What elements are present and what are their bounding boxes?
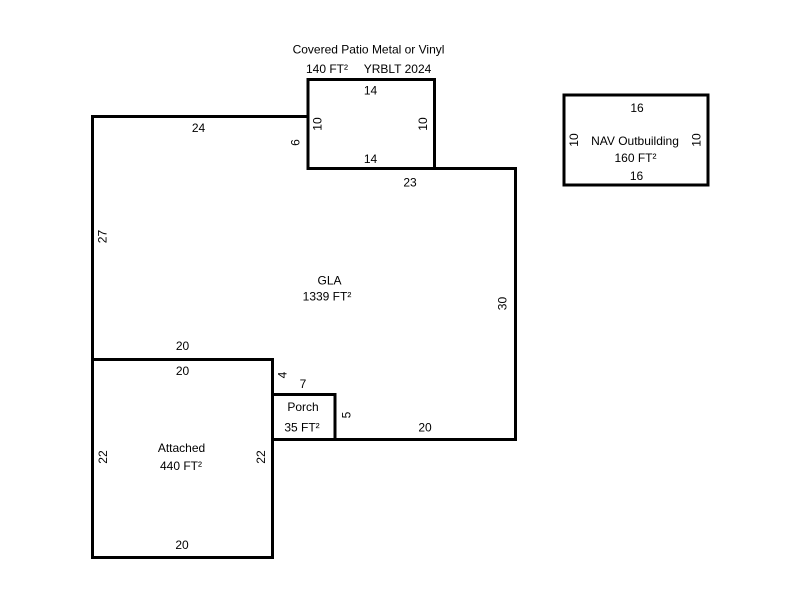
svg-text:4: 4	[276, 371, 290, 378]
svg-text:440 FT²: 440 FT²	[160, 459, 202, 473]
svg-text:14: 14	[364, 84, 378, 98]
svg-text:5: 5	[340, 411, 354, 418]
svg-text:20: 20	[176, 364, 190, 378]
svg-text:6: 6	[289, 139, 303, 146]
svg-text:10: 10	[689, 133, 703, 147]
svg-text:160 FT²: 160 FT²	[614, 151, 656, 165]
svg-text:27: 27	[96, 230, 110, 244]
svg-text:22: 22	[254, 450, 268, 464]
svg-text:20: 20	[176, 339, 190, 353]
svg-text:1339 FT²: 1339 FT²	[303, 290, 352, 304]
svg-text:GLA: GLA	[317, 274, 341, 288]
svg-text:140 FT²: 140 FT²	[306, 62, 348, 76]
svg-text:NAV Outbuilding: NAV Outbuilding	[591, 134, 679, 148]
svg-text:10: 10	[567, 133, 581, 147]
svg-text:20: 20	[418, 421, 432, 435]
svg-text:30: 30	[495, 297, 509, 311]
svg-text:24: 24	[192, 121, 206, 135]
svg-text:10: 10	[311, 117, 325, 131]
svg-text:35 FT²: 35 FT²	[284, 421, 319, 435]
svg-text:22: 22	[96, 450, 110, 464]
svg-text:16: 16	[630, 169, 644, 183]
svg-text:YRBLT 2024: YRBLT 2024	[364, 62, 432, 76]
svg-text:20: 20	[175, 538, 189, 552]
svg-text:Porch: Porch	[287, 400, 318, 414]
svg-text:16: 16	[630, 101, 644, 115]
svg-text:14: 14	[364, 152, 378, 166]
svg-text:Covered Patio Metal or Vinyl: Covered Patio Metal or Vinyl	[293, 43, 445, 57]
svg-text:10: 10	[416, 117, 430, 131]
svg-text:Attached: Attached	[158, 441, 205, 455]
svg-text:23: 23	[403, 176, 417, 190]
svg-text:7: 7	[300, 377, 307, 391]
